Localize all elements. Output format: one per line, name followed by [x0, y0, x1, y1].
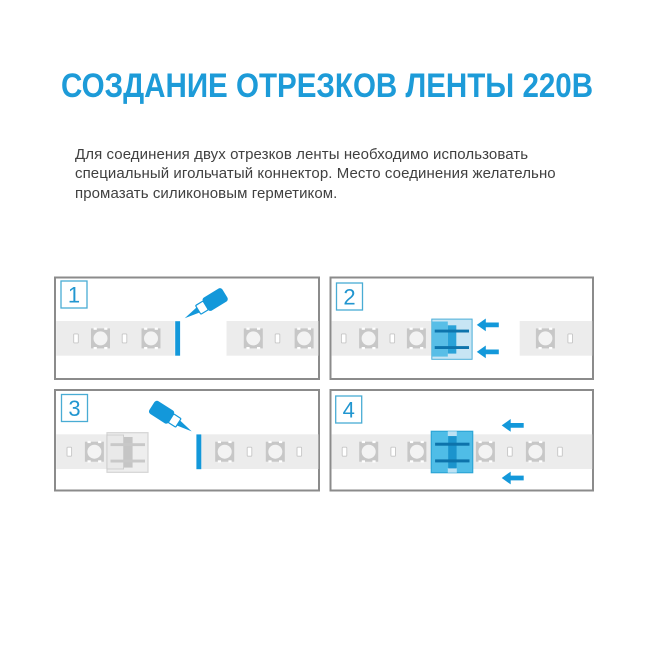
svg-text:1: 1 [68, 283, 80, 308]
svg-text:4: 4 [343, 398, 355, 423]
svg-text:2: 2 [343, 285, 355, 310]
svg-text:3: 3 [68, 396, 80, 421]
